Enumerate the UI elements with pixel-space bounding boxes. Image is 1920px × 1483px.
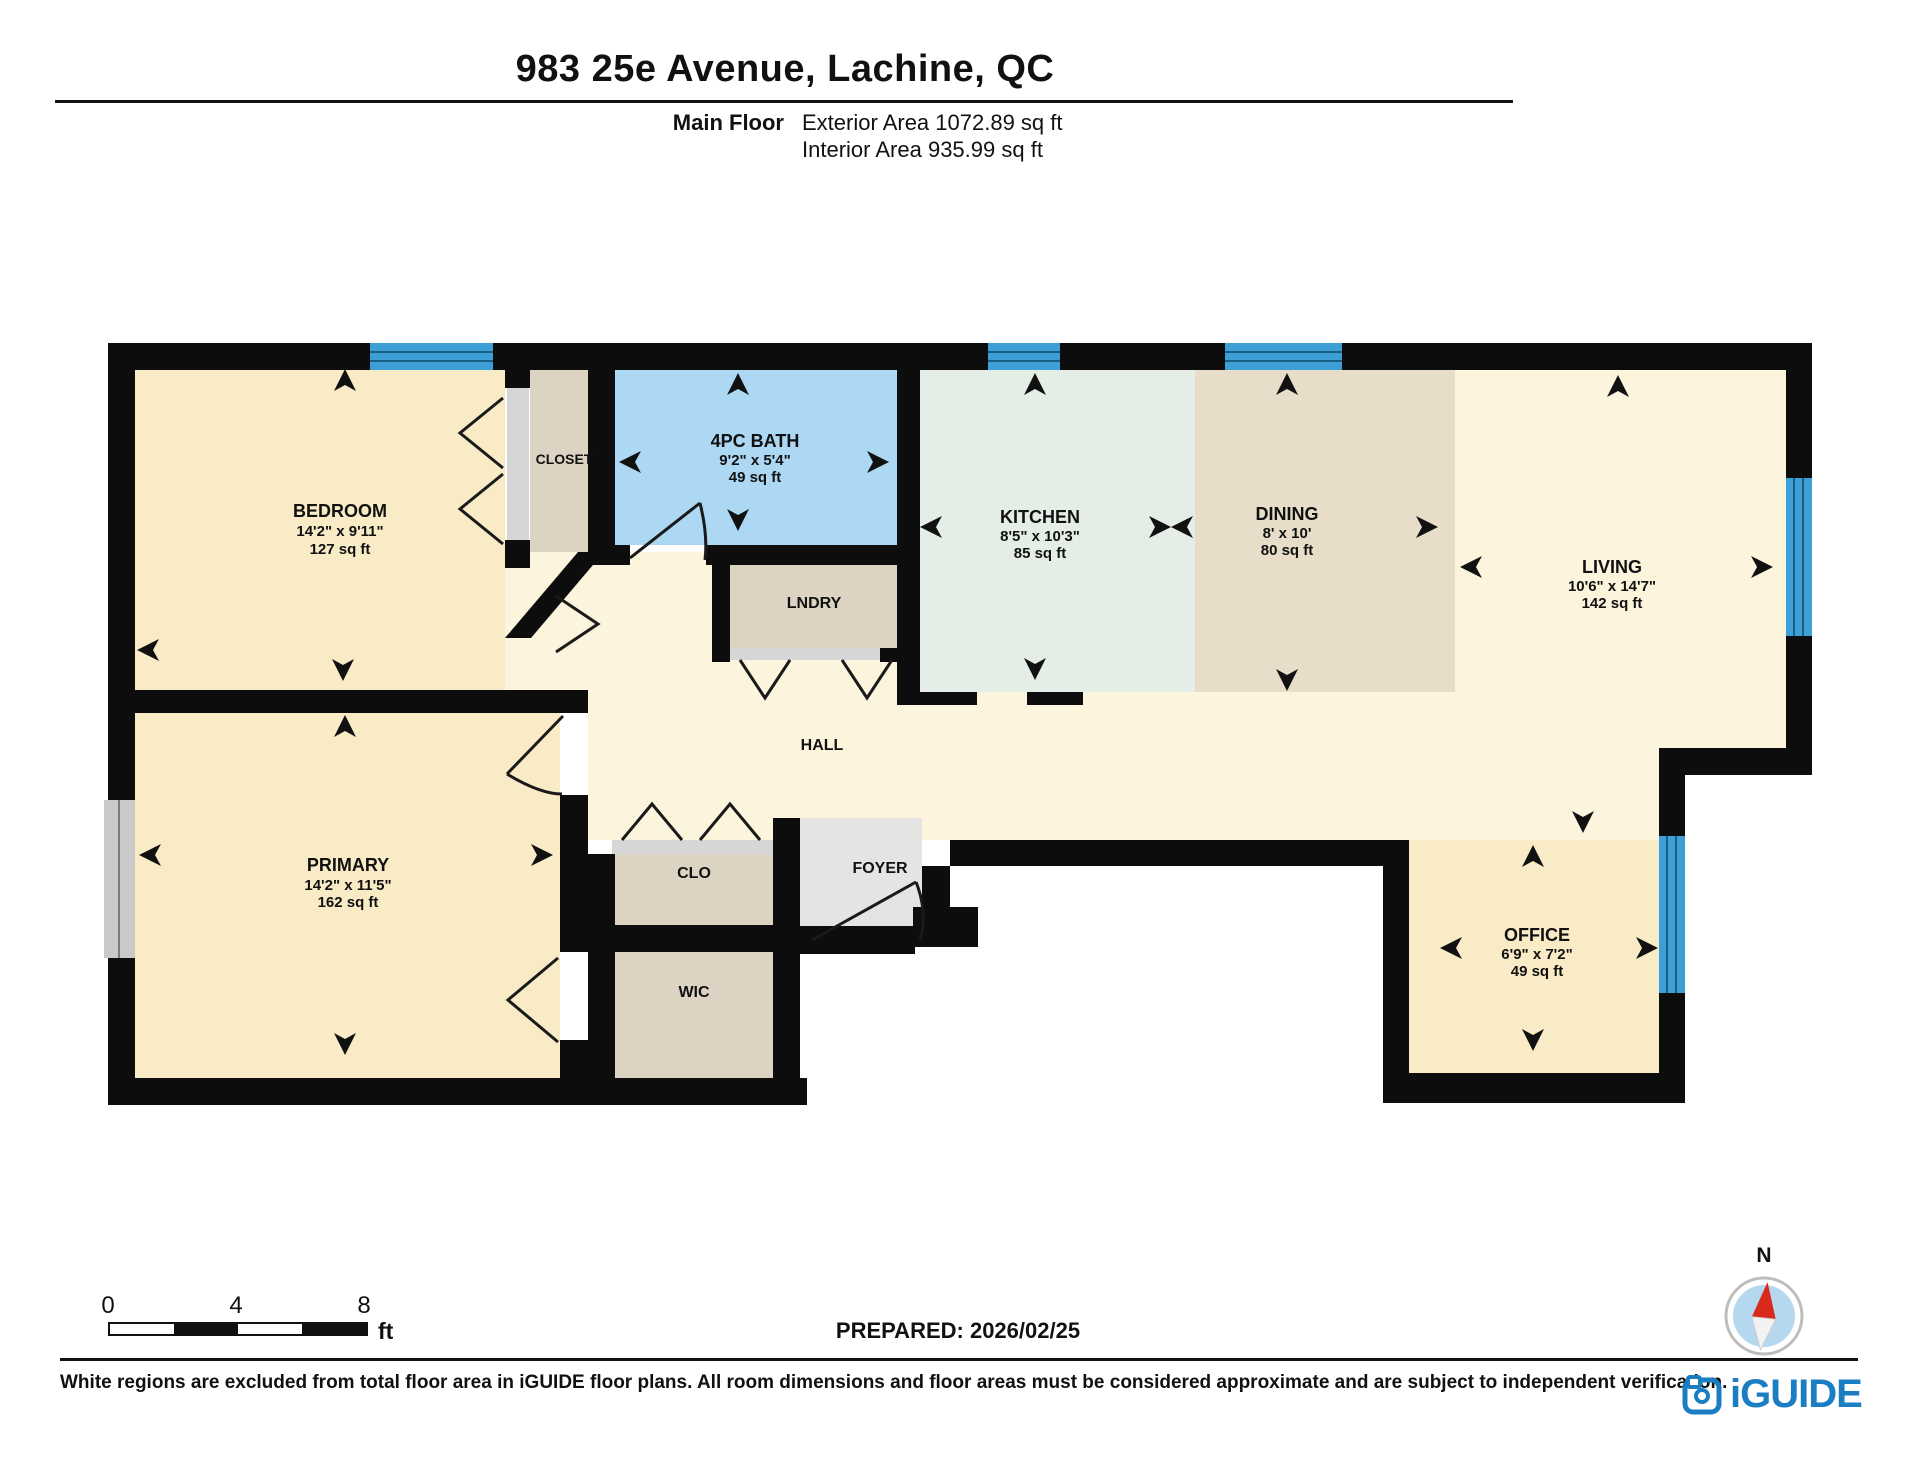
svg-text:BEDROOM: BEDROOM — [293, 501, 387, 521]
svg-text:14'2" x 11'5": 14'2" x 11'5" — [304, 877, 391, 894]
svg-text:10'6" x 14'7": 10'6" x 14'7" — [1568, 578, 1656, 595]
svg-text:DINING: DINING — [1256, 504, 1319, 524]
svg-text:8'5" x 10'3": 8'5" x 10'3" — [1000, 528, 1080, 545]
wic-label: WIC — [678, 984, 710, 1001]
iguide-logo-text: iGUIDE — [1730, 1372, 1862, 1417]
dining-window — [1225, 343, 1342, 370]
foyer-label: FOYER — [852, 860, 908, 877]
scale-tick-8: 8 — [344, 1292, 384, 1320]
svg-text:KITCHEN: KITCHEN — [1000, 507, 1080, 527]
lndry-label: LNDRY — [787, 595, 842, 612]
dining-label: DINING 8' x 10' 80 sq ft — [1256, 504, 1319, 559]
svg-text:85 sq ft: 85 sq ft — [1014, 545, 1067, 562]
svg-text:PRIMARY: PRIMARY — [307, 855, 389, 875]
iguide-logo-icon — [1682, 1374, 1724, 1416]
iguide-logo: iGUIDE — [1682, 1372, 1862, 1417]
scale-unit: ft — [378, 1318, 393, 1345]
prepared-date: PREPARED: 2026/02/25 — [758, 1318, 1158, 1344]
svg-text:162 sq ft: 162 sq ft — [318, 894, 379, 911]
svg-text:142 sq ft: 142 sq ft — [1582, 595, 1643, 612]
svg-text:8' x 10': 8' x 10' — [1263, 525, 1312, 542]
svg-text:4PC BATH: 4PC BATH — [711, 431, 800, 451]
office-label: OFFICE 6'9" x 7'2" 49 sq ft — [1501, 925, 1572, 980]
clo-label: CLO — [677, 865, 711, 882]
closet-label: CLOSET — [536, 451, 593, 467]
footer-divider — [60, 1358, 1858, 1361]
floorplan-drawing: BEDROOM 14'2" x 9'11" 127 sq ft CLOSET 4… — [0, 0, 1920, 1483]
floorplan-page: 983 25e Avenue, Lachine, QC Main Floor E… — [0, 0, 1920, 1483]
scale-tick-4: 4 — [216, 1292, 256, 1320]
compass-icon: N — [1712, 1244, 1816, 1366]
svg-text:80 sq ft: 80 sq ft — [1261, 542, 1314, 559]
hall-label: HALL — [801, 737, 844, 754]
primary-window — [104, 800, 135, 958]
svg-text:127 sq ft: 127 sq ft — [310, 541, 371, 558]
living-window — [1786, 478, 1812, 636]
kitchen-window — [988, 343, 1060, 370]
scale-bar — [108, 1322, 368, 1336]
disclaimer-text: White regions are excluded from total fl… — [60, 1372, 1727, 1394]
svg-text:49 sq ft: 49 sq ft — [1511, 963, 1564, 980]
svg-text:14'2" x 9'11": 14'2" x 9'11" — [296, 523, 383, 540]
bedroom-window — [370, 343, 493, 370]
svg-text:LIVING: LIVING — [1582, 557, 1642, 577]
scale-tick-0: 0 — [88, 1292, 128, 1320]
compass-north-label: N — [1756, 1244, 1771, 1267]
svg-text:9'2" x 5'4": 9'2" x 5'4" — [719, 452, 790, 469]
svg-text:OFFICE: OFFICE — [1504, 925, 1570, 945]
office-window — [1659, 836, 1685, 993]
svg-text:49 sq ft: 49 sq ft — [729, 469, 782, 486]
svg-text:6'9" x 7'2": 6'9" x 7'2" — [1501, 946, 1572, 963]
